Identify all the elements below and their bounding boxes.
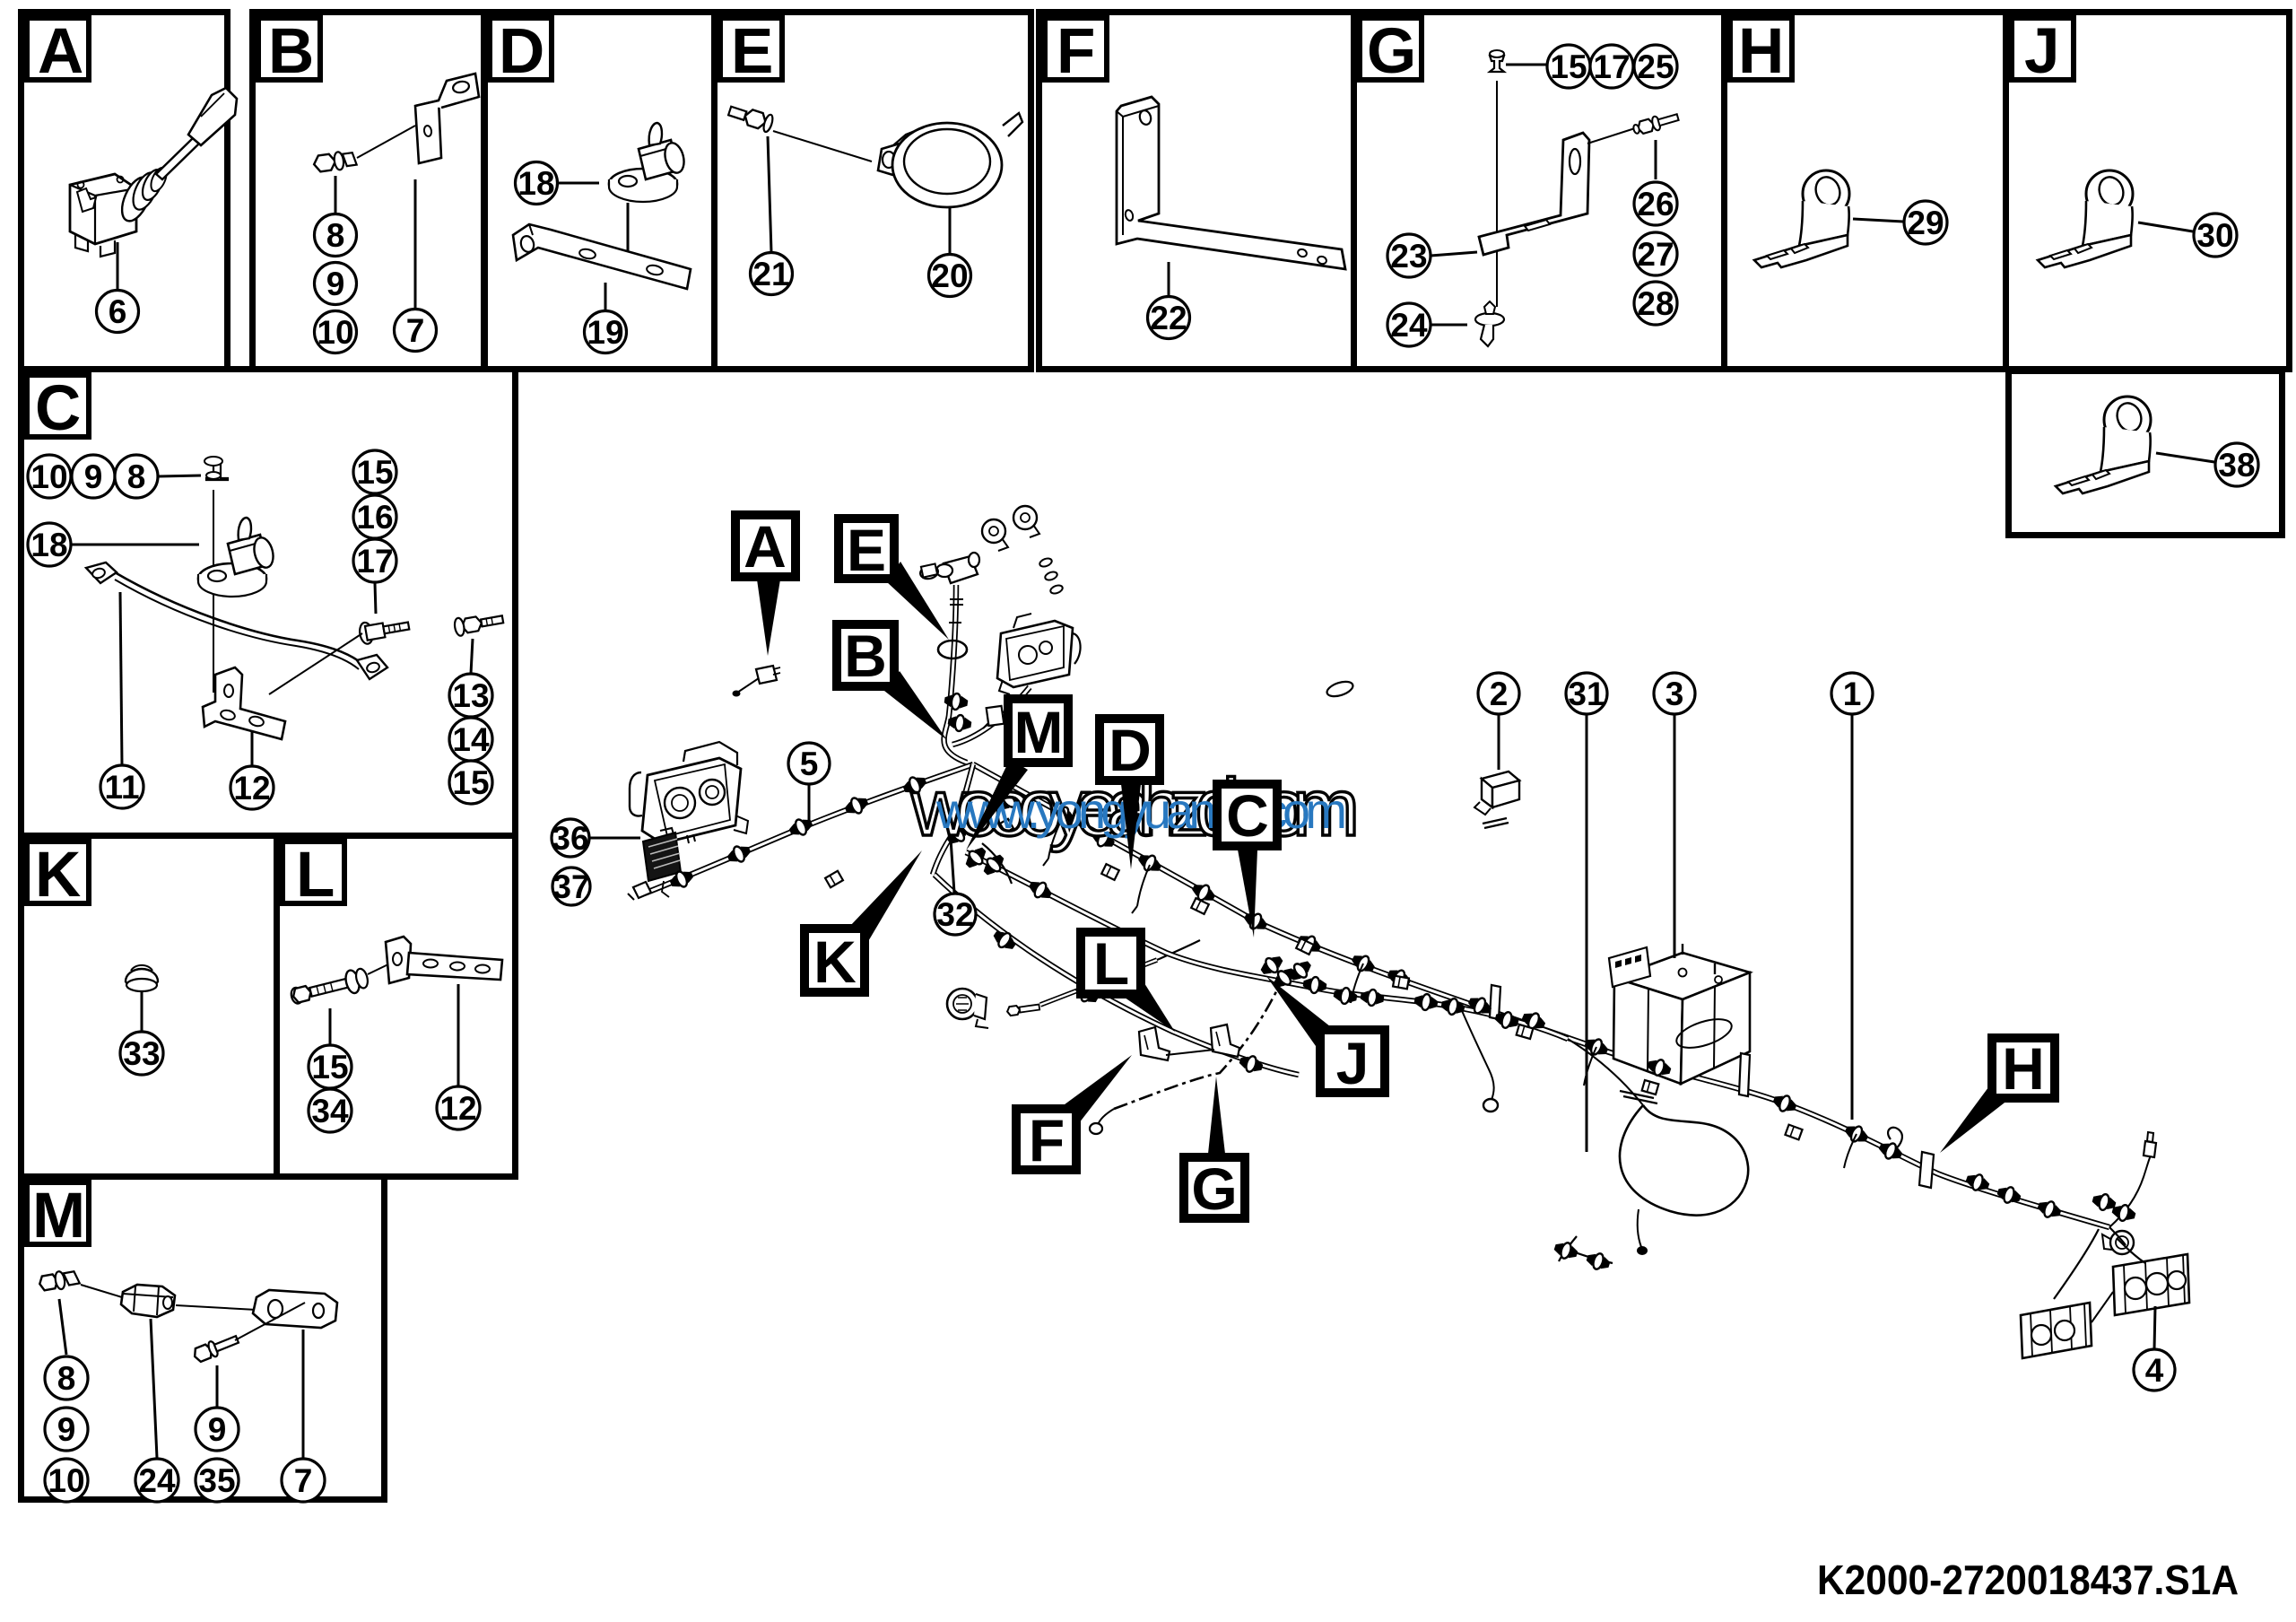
- svg-text:10: 10: [317, 314, 353, 351]
- svg-text:17: 17: [1593, 48, 1630, 85]
- svg-text:15: 15: [356, 454, 393, 491]
- svg-text:D: D: [1109, 717, 1152, 783]
- svg-text:23: 23: [1390, 238, 1427, 275]
- svg-text:K: K: [813, 929, 857, 995]
- svg-text:30: 30: [2196, 217, 2233, 254]
- svg-text:16: 16: [356, 499, 393, 536]
- svg-text:15: 15: [1550, 48, 1587, 85]
- svg-text:15: 15: [452, 764, 489, 801]
- svg-text:32: 32: [936, 896, 973, 933]
- svg-text:8: 8: [127, 458, 146, 495]
- svg-text:13: 13: [452, 677, 489, 714]
- svg-text:M: M: [32, 1181, 85, 1251]
- svg-text:6: 6: [109, 293, 127, 330]
- svg-text:K2000-2720018437.S1A: K2000-2720018437.S1A: [1817, 1557, 2239, 1603]
- svg-text:26: 26: [1637, 186, 1674, 222]
- svg-text:C: C: [35, 373, 81, 444]
- svg-text:G: G: [1367, 16, 1416, 87]
- svg-text:J: J: [1336, 1030, 1370, 1096]
- svg-text:B: B: [844, 623, 887, 689]
- svg-text:10: 10: [48, 1462, 84, 1499]
- svg-text:1: 1: [1843, 676, 1862, 712]
- svg-text:D: D: [499, 16, 544, 87]
- svg-text:2: 2: [1490, 676, 1509, 712]
- svg-text:5: 5: [800, 746, 819, 782]
- svg-text:L: L: [296, 840, 335, 911]
- svg-text:28: 28: [1637, 285, 1674, 322]
- svg-text:F: F: [1057, 16, 1095, 87]
- svg-text:34: 34: [311, 1093, 349, 1129]
- svg-text:9: 9: [84, 458, 103, 495]
- svg-text:24: 24: [1390, 307, 1428, 344]
- svg-text:10: 10: [30, 458, 67, 495]
- svg-text:B: B: [268, 16, 314, 87]
- svg-text:21: 21: [752, 256, 789, 292]
- svg-text:G: G: [1191, 1155, 1237, 1222]
- svg-text:38: 38: [2218, 447, 2255, 484]
- svg-text:E: E: [731, 16, 773, 87]
- svg-text:M: M: [1014, 699, 1064, 765]
- svg-text:37: 37: [552, 868, 589, 905]
- svg-text:H: H: [1738, 16, 1784, 87]
- svg-text:8: 8: [57, 1360, 76, 1397]
- svg-text:7: 7: [406, 312, 425, 349]
- svg-text:11: 11: [104, 769, 139, 806]
- svg-text:31: 31: [1568, 676, 1605, 712]
- svg-text:18: 18: [30, 527, 67, 563]
- svg-text:3: 3: [1665, 676, 1684, 712]
- svg-text:15: 15: [311, 1049, 348, 1086]
- svg-text:25: 25: [1637, 48, 1674, 85]
- svg-text:H: H: [2002, 1035, 2045, 1102]
- svg-text:12: 12: [233, 770, 270, 807]
- svg-text:4: 4: [2145, 1352, 2164, 1389]
- svg-text:20: 20: [931, 257, 968, 294]
- svg-text:12: 12: [439, 1090, 476, 1127]
- svg-text:9: 9: [208, 1411, 227, 1448]
- svg-text:14: 14: [452, 721, 490, 758]
- svg-text:35: 35: [198, 1462, 235, 1499]
- svg-text:19: 19: [587, 314, 623, 351]
- svg-text:36: 36: [552, 820, 588, 857]
- svg-text:C: C: [1226, 782, 1269, 849]
- svg-text:27: 27: [1637, 236, 1674, 273]
- svg-text:J: J: [2024, 16, 2060, 87]
- svg-text:8: 8: [326, 217, 345, 254]
- svg-text:L: L: [1093, 930, 1129, 997]
- svg-text:29: 29: [1907, 205, 1944, 241]
- svg-text:9: 9: [57, 1411, 76, 1448]
- svg-text:33: 33: [123, 1035, 160, 1072]
- svg-text:F: F: [1029, 1107, 1065, 1173]
- svg-text:K: K: [35, 840, 81, 911]
- svg-text:24: 24: [138, 1462, 176, 1499]
- svg-text:A: A: [744, 513, 787, 580]
- svg-text:E: E: [847, 517, 886, 583]
- svg-text:7: 7: [294, 1462, 313, 1499]
- svg-text:A: A: [38, 16, 83, 87]
- svg-text:9: 9: [326, 266, 345, 302]
- svg-text:17: 17: [356, 543, 393, 580]
- svg-text:18: 18: [517, 165, 554, 202]
- svg-text:22: 22: [1150, 300, 1187, 336]
